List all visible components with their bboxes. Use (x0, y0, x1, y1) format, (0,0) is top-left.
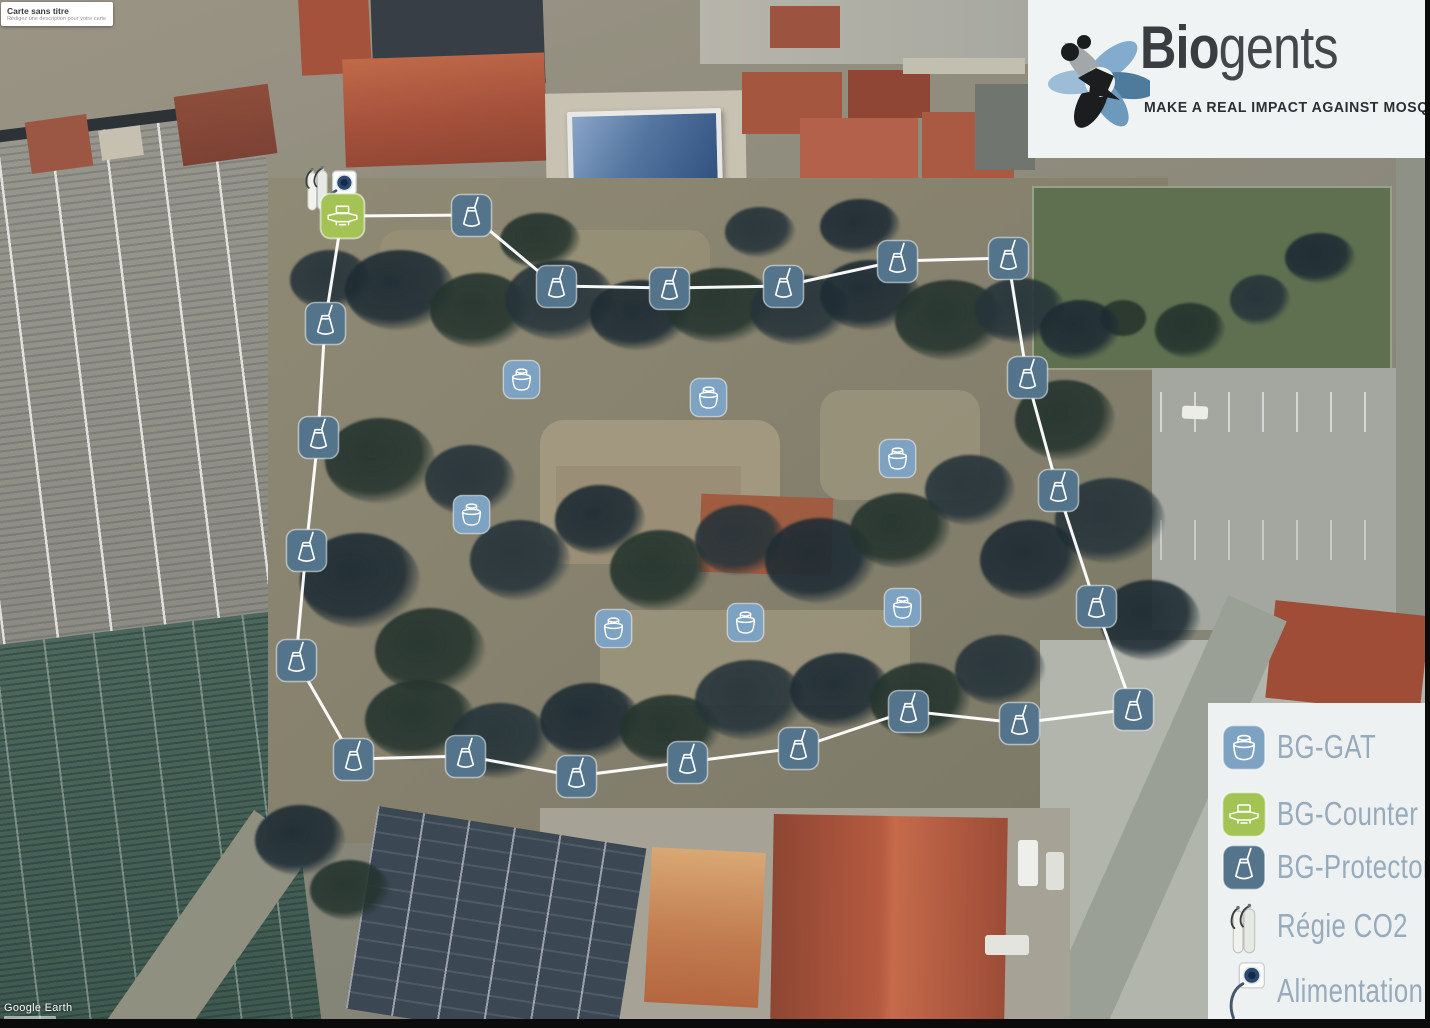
tree-canopy (310, 860, 390, 920)
bg-protector-marker[interactable] (887, 689, 930, 734)
legend-panel: BG-GAT BG-Counter BG-Protector (1208, 703, 1430, 1028)
legend-label-bg-counter: BG-Counter (1277, 795, 1418, 833)
bg-protector-icon (1221, 844, 1267, 890)
bg-protector-marker[interactable] (998, 701, 1041, 746)
bg-protector-marker[interactable] (1112, 687, 1155, 732)
brand-wordmark: Biogents (1140, 18, 1338, 78)
bg-protector-marker[interactable] (450, 193, 493, 238)
legend-label-bg-gat: BG-GAT (1277, 728, 1376, 766)
brand-bold: Bio (1140, 14, 1219, 81)
bg-protector-marker[interactable] (535, 264, 578, 309)
legend-label-regie-co2: Régie CO2 (1277, 907, 1408, 945)
tree-canopy (1155, 303, 1225, 358)
bg-counter-icon (1221, 791, 1267, 837)
bg-gat-marker[interactable] (878, 434, 917, 483)
bg-gat-marker[interactable] (689, 373, 728, 422)
tree-canopy (1285, 233, 1355, 283)
tree-canopy (725, 207, 795, 257)
bg-protector-marker[interactable] (987, 236, 1030, 281)
bg-protector-marker[interactable] (777, 726, 820, 771)
attribution-text: Google Earth (4, 1002, 72, 1014)
bg-counter-marker[interactable] (319, 192, 366, 240)
tree-canopy (980, 520, 1080, 600)
bg-protector-marker[interactable] (332, 737, 375, 782)
bg-protector-marker[interactable] (1037, 468, 1080, 513)
right-frame-bar (1425, 0, 1430, 1028)
bg-gat-marker[interactable] (502, 355, 541, 404)
bg-protector-marker[interactable] (876, 239, 919, 284)
bg-gat-marker[interactable] (594, 604, 633, 653)
tree-canopy (325, 418, 435, 503)
bg-protector-marker[interactable] (444, 734, 487, 779)
bg-protector-marker[interactable] (762, 264, 805, 309)
bg-protector-marker[interactable] (285, 528, 328, 573)
bg-protector-marker[interactable] (304, 301, 347, 346)
map-subtitle: Rédigez une description pour votre carte (7, 16, 107, 23)
tree-canopy (500, 213, 580, 268)
legend-item-bg-gat[interactable]: BG-GAT (1221, 724, 1430, 770)
legend-label-alimentation: Alimentation (1277, 972, 1423, 1010)
bg-protector-marker[interactable] (1075, 584, 1118, 629)
bg-protector-marker[interactable] (666, 740, 709, 785)
bg-protector-marker[interactable] (275, 638, 318, 683)
legend-item-alimentation[interactable]: Alimentation (1221, 962, 1430, 1020)
tree-canopy (925, 455, 1015, 525)
legend-item-regie-co2[interactable]: Régie CO2 (1221, 897, 1430, 955)
attribution: Google Earth (4, 1002, 72, 1020)
bg-gat-marker[interactable] (883, 583, 922, 632)
legend-label-bg-protector: BG-Protector (1277, 848, 1430, 886)
bg-gat-icon (1221, 724, 1267, 770)
bg-protector-marker[interactable] (1006, 355, 1049, 400)
tree-canopy (1040, 300, 1120, 360)
map-title-card[interactable]: Carte sans titre Rédigez une description… (1, 2, 113, 26)
bg-gat-marker[interactable] (452, 490, 491, 539)
legend-item-bg-protector[interactable]: BG-Protector (1221, 844, 1430, 890)
brand-tagline: MAKE A REAL IMPACT AGAINST MOSQUITOES (1144, 100, 1430, 116)
brand-light: gents (1219, 14, 1338, 81)
bg-gat-marker[interactable] (726, 598, 765, 647)
bg-protector-marker[interactable] (648, 266, 691, 311)
satellite-map-view[interactable]: Carte sans titre Rédigez une description… (0, 0, 1430, 1028)
map-title: Carte sans titre (7, 6, 107, 16)
alimentation-icon (1221, 962, 1267, 1020)
legend-item-bg-counter[interactable]: BG-Counter (1221, 791, 1430, 837)
bg-protector-marker[interactable] (555, 754, 598, 799)
tree-canopy (1230, 275, 1290, 325)
regie-co2-icon (1221, 897, 1267, 955)
bg-protector-marker[interactable] (297, 415, 340, 460)
biogents-logo-icon (1042, 14, 1150, 136)
bottom-frame-bar (0, 1019, 1430, 1028)
logo-panel: Biogents MAKE A REAL IMPACT AGAINST MOSQ… (1028, 0, 1430, 158)
tree-canopy (955, 635, 1045, 705)
